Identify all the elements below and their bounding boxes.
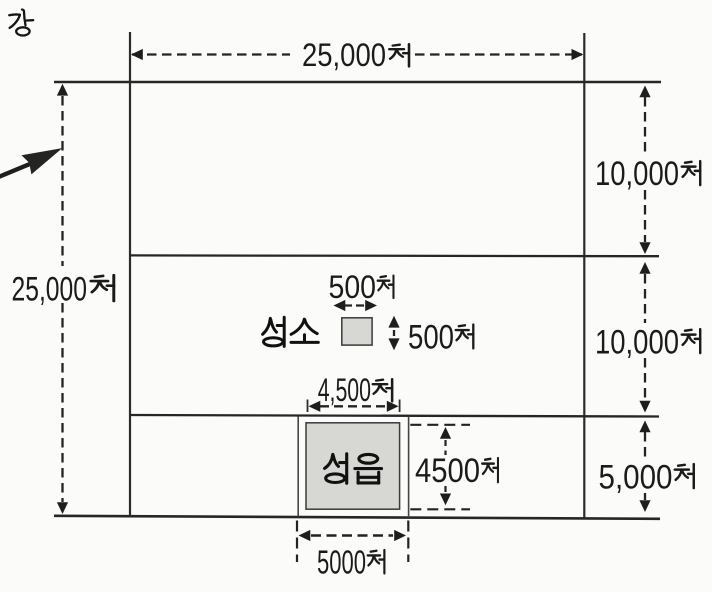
svg-text:5000: 5000 bbox=[317, 544, 366, 581]
svg-text:10,000: 10,000 bbox=[595, 324, 679, 362]
svg-text:4,500: 4,500 bbox=[318, 372, 371, 408]
svg-text:10,000: 10,000 bbox=[595, 155, 679, 193]
svg-text:4500: 4500 bbox=[415, 452, 480, 490]
svg-text:25,000: 25,000 bbox=[302, 37, 386, 73]
svg-text:25,000: 25,000 bbox=[12, 271, 88, 309]
svg-text:5,000: 5,000 bbox=[599, 459, 673, 497]
svg-text:500: 500 bbox=[408, 319, 454, 357]
svg-text:500: 500 bbox=[329, 269, 377, 305]
